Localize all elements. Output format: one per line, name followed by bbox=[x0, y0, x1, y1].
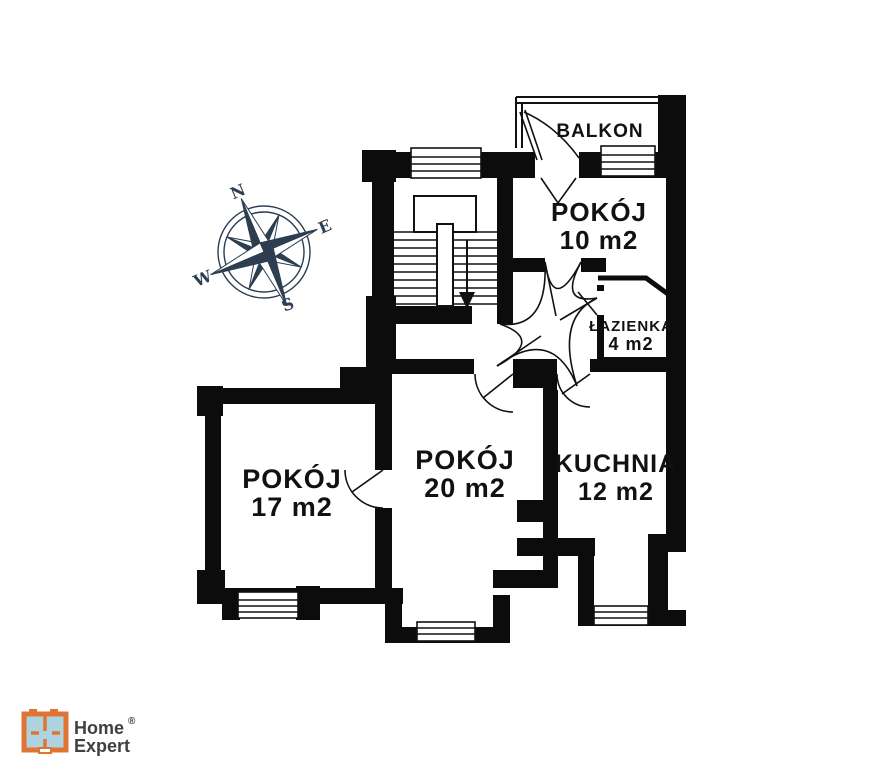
floor-plan: BALKON POKÓJ 10 m2 ŁAZIENKA 4 m2 POKÓJ 1… bbox=[0, 0, 884, 768]
compass-n: N bbox=[227, 180, 248, 203]
compass-w: W bbox=[190, 266, 216, 291]
label-lazienka-name: ŁAZIENKA bbox=[589, 318, 673, 335]
floor-plan-page: BALKON POKÓJ 10 m2 ŁAZIENKA 4 m2 POKÓJ 1… bbox=[0, 0, 884, 768]
door-pokoj-20 bbox=[475, 374, 513, 412]
window-pokoj-17 bbox=[238, 592, 298, 618]
label-pokoj20-name: POKÓJ bbox=[415, 444, 515, 475]
label-pokoj10-area: 10 m2 bbox=[560, 225, 639, 255]
window-kuchnia bbox=[594, 606, 648, 625]
window-pokoj-20 bbox=[417, 622, 475, 641]
compass-e: E bbox=[315, 215, 334, 237]
label-pokoj20-area: 20 m2 bbox=[424, 473, 506, 503]
compass-star bbox=[211, 199, 318, 306]
window-balcony bbox=[601, 146, 655, 176]
label-lazienka-area: 4 m2 bbox=[608, 334, 653, 354]
bathroom-top-wall bbox=[598, 278, 668, 294]
stair-stringer bbox=[437, 224, 453, 306]
label-pokoj17-area: 17 m2 bbox=[251, 492, 333, 522]
logo-floorplan-icon bbox=[24, 709, 66, 753]
staircase bbox=[394, 196, 497, 309]
label-pokoj10-name: POKÓJ bbox=[551, 197, 647, 227]
window-staircase bbox=[411, 148, 481, 178]
balcony-door-opening bbox=[535, 150, 579, 180]
label-kuchnia-name: KUCHNIA bbox=[555, 450, 677, 478]
logo-text-line2: Expert bbox=[74, 736, 130, 756]
compass-s: S bbox=[279, 294, 297, 316]
logo-registered-mark: ® bbox=[128, 716, 136, 727]
compass-rose: N E S W bbox=[190, 180, 334, 316]
door-pokoj-17 bbox=[345, 470, 383, 508]
label-kuchnia-area: 12 m2 bbox=[578, 478, 654, 506]
label-pokoj17-name: POKÓJ bbox=[242, 463, 342, 494]
label-balkon: BALKON bbox=[556, 121, 643, 142]
logo-text-line1: Home bbox=[74, 718, 124, 738]
home-expert-logo: Home Expert ® bbox=[24, 709, 136, 756]
